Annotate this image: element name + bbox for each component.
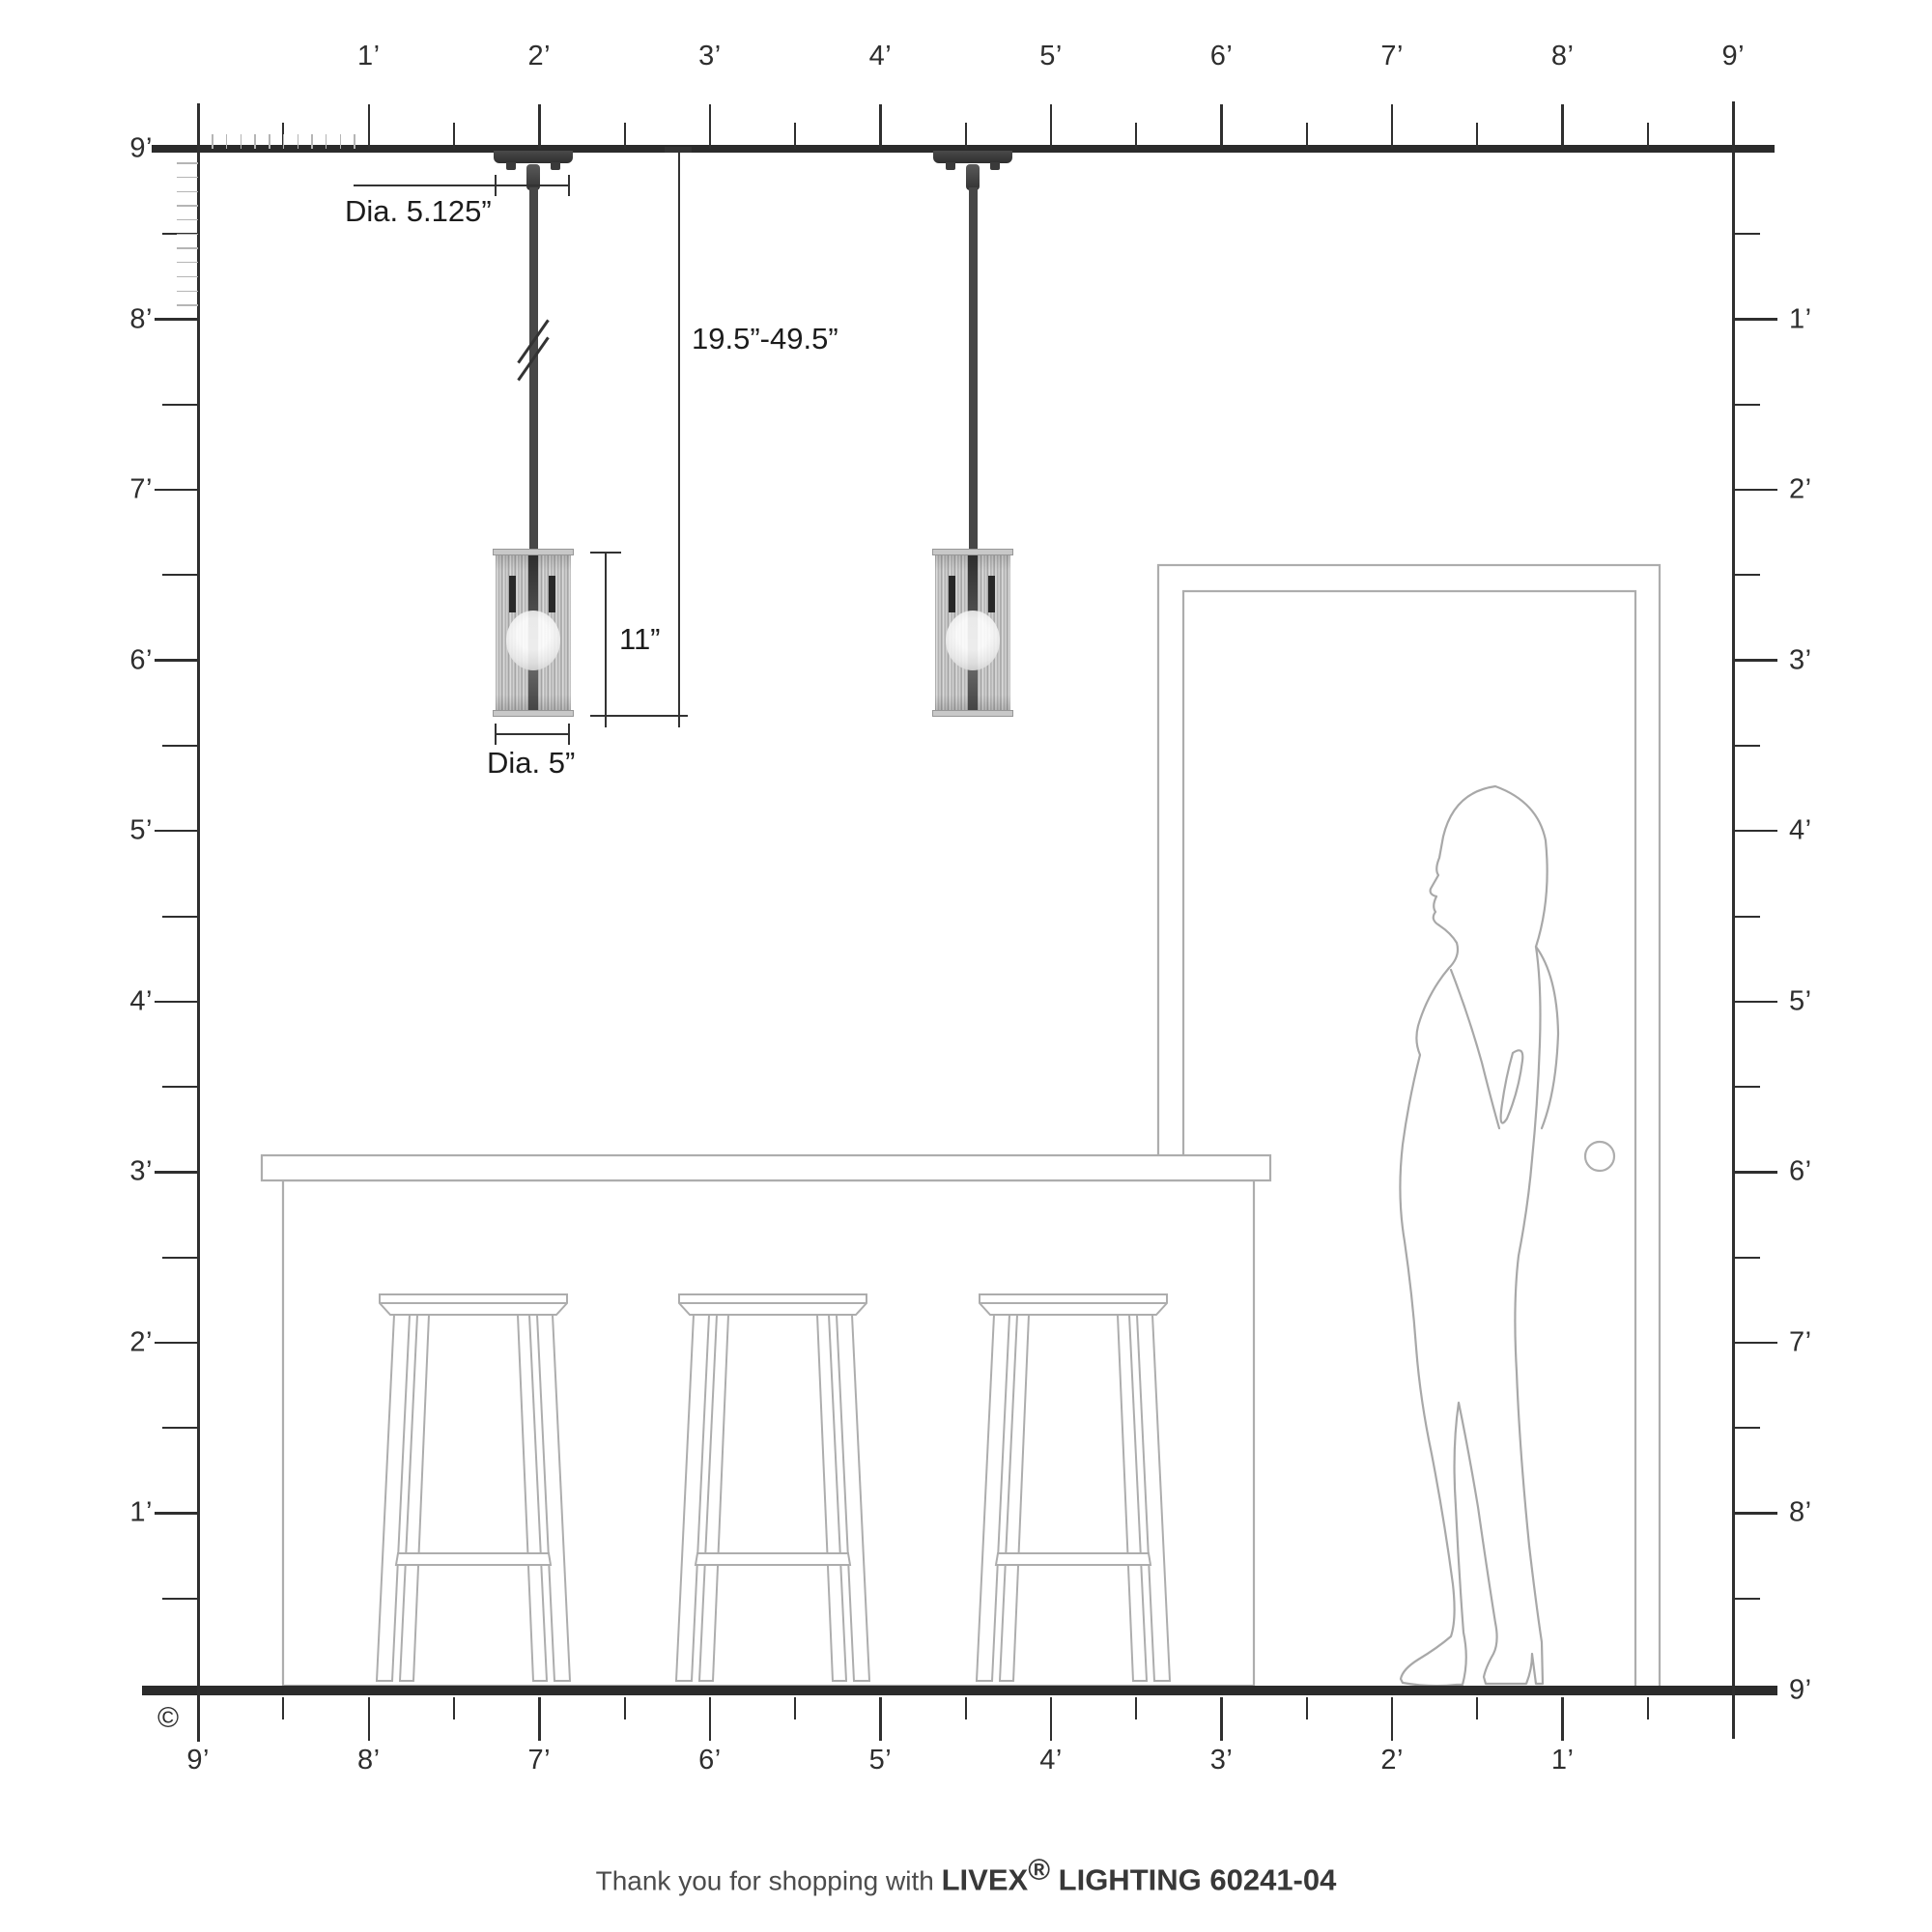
ruler-label: 7’ [1380, 41, 1404, 72]
scale-diagram-page: 1’2’3’4’5’6’7’8’9’9’8’7’6’5’4’3’2’1’1’2’… [0, 0, 1932, 1932]
floor-line [142, 1686, 1777, 1695]
ruler-tick [155, 489, 198, 492]
footer-thanks: Thank you for shopping with [596, 1865, 942, 1895]
ruler-label: 3’ [1789, 644, 1812, 676]
canopy-screw [990, 162, 1000, 170]
downrod-stem [969, 187, 978, 554]
footer-brand: LIVEX [942, 1862, 1029, 1896]
socket-clip [509, 576, 516, 612]
ruler-tick [794, 1697, 796, 1719]
ruler-tick [1733, 233, 1760, 235]
shade-top-rim [493, 549, 574, 555]
ruler-label: 9’ [186, 1745, 210, 1776]
ruler-label: 8’ [1789, 1497, 1812, 1529]
registered-mark: ® [1028, 1853, 1050, 1887]
ruler-label: 6’ [1210, 41, 1234, 72]
ribbed-glass-shade [493, 549, 574, 717]
inch-tick [326, 134, 327, 149]
ribbed-glass-shade [932, 549, 1013, 717]
inch-tick [354, 134, 355, 149]
ruler-label: 7’ [1789, 1326, 1812, 1358]
ruler-tick [162, 1086, 198, 1088]
inch-tick [177, 304, 198, 305]
ruler-tick [1733, 1001, 1777, 1004]
socket-clip [549, 576, 555, 612]
ruler-tick [368, 1697, 371, 1741]
shade-dia-tick [495, 724, 497, 745]
ruler-tick [162, 1598, 198, 1600]
ruler-tick [1733, 659, 1777, 662]
inch-tick [177, 162, 198, 163]
inch-tick [177, 205, 198, 206]
inch-tick [283, 134, 284, 149]
ruler-tick [1391, 104, 1394, 149]
ruler-label: 3’ [1210, 1745, 1234, 1776]
ruler-label: 7’ [528, 1745, 552, 1776]
ruler-label: 4’ [869, 41, 893, 72]
ruler-tick [1733, 916, 1760, 918]
counter-body [283, 1180, 1254, 1686]
overall-drop-dim-line [678, 153, 680, 727]
ruler-label: 9’ [129, 133, 153, 165]
ruler-tick [155, 1001, 198, 1004]
ruler-label: 2’ [129, 1326, 153, 1358]
ruler-tick [879, 104, 882, 149]
inch-tick [340, 134, 341, 149]
ruler-tick [538, 1697, 541, 1741]
ruler-label: 5’ [869, 1745, 893, 1776]
stem-knuckle [966, 164, 980, 190]
ruler-tick [965, 123, 967, 149]
ruler-label: 7’ [129, 474, 153, 506]
ruler-tick [709, 104, 712, 149]
ruler-tick [162, 916, 198, 918]
ruler-tick [1135, 1697, 1137, 1719]
ruler-tick [1733, 574, 1760, 576]
overall-drop-label: 19.5”-49.5” [692, 322, 838, 356]
ruler-label: 8’ [357, 1745, 381, 1776]
ruler-label: 5’ [1039, 41, 1063, 72]
ruler-label: 6’ [698, 1745, 722, 1776]
ruler-tick [624, 123, 626, 149]
ruler-label: 9’ [1721, 41, 1745, 72]
ruler-tick [162, 1257, 198, 1259]
shade-bottom-rim [932, 710, 1013, 717]
ruler-tick [162, 1427, 198, 1429]
ruler-tick [1306, 1697, 1308, 1719]
ruler-label: 3’ [698, 41, 722, 72]
canopy-screw [946, 162, 955, 170]
ruler-tick [155, 1171, 198, 1174]
ruler-label: 2’ [1380, 1745, 1404, 1776]
downrod-stem [529, 187, 538, 554]
canopy-diameter-label: Dia. 5.125” [345, 194, 492, 229]
inch-tick [177, 247, 198, 248]
ruler-label: 1’ [1789, 303, 1812, 335]
ruler-tick [1306, 123, 1308, 149]
ruler-tick [197, 1697, 200, 1741]
inch-tick [298, 134, 298, 149]
ruler-tick [1135, 123, 1137, 149]
ruler-label: 1’ [1551, 1745, 1575, 1776]
ruler-label: 2’ [528, 41, 552, 72]
shade-height-dim-line [605, 553, 607, 727]
ruler-tick [1733, 1257, 1760, 1259]
ruler-tick [1647, 1697, 1649, 1719]
canopy-screw [506, 162, 516, 170]
ruler-tick [1733, 1171, 1777, 1174]
ruler-tick [155, 659, 198, 662]
ruler-label: 6’ [129, 644, 153, 676]
ruler-tick [1733, 745, 1760, 747]
ruler-label: 5’ [1789, 985, 1812, 1017]
inch-tick [212, 134, 213, 149]
ruler-label: 8’ [129, 303, 153, 335]
ruler-tick [709, 1697, 712, 1741]
inch-tick [269, 134, 270, 149]
shade-height-top-tick [590, 552, 621, 554]
ruler-label: 5’ [129, 815, 153, 847]
ruler-tick [1220, 104, 1223, 149]
inch-tick [311, 134, 312, 149]
right-ruler-line [1732, 101, 1735, 1739]
inch-tick [177, 219, 198, 220]
ruler-tick [453, 1697, 455, 1719]
ruler-tick [1050, 104, 1053, 149]
left-ruler-line [197, 103, 200, 1742]
light-bulb [506, 611, 560, 670]
inch-tick [177, 177, 198, 178]
ruler-label: 4’ [1789, 815, 1812, 847]
woman-silhouette [1400, 786, 1558, 1686]
ruler-tick [1561, 104, 1564, 149]
ruler-tick [1733, 830, 1777, 833]
footer-product: LIGHTING 60241-04 [1050, 1862, 1336, 1896]
ruler-label: 4’ [1039, 1745, 1063, 1776]
overall-drop-top-tick [665, 147, 692, 153]
door-knob [1585, 1142, 1614, 1171]
ruler-tick [538, 104, 541, 149]
ruler-tick [1476, 1697, 1478, 1719]
shade-diameter-label: Dia. 5” [487, 746, 575, 781]
ruler-tick [1476, 123, 1478, 149]
ruler-tick [1561, 1697, 1564, 1741]
scene-drawing [0, 0, 1932, 1932]
canopy-dia-dim-line [354, 185, 570, 186]
ruler-label: 1’ [357, 41, 381, 72]
ruler-tick [368, 104, 371, 149]
inch-tick [177, 234, 198, 235]
canopy-dia-tick [568, 175, 570, 196]
inch-tick [177, 191, 198, 192]
ruler-tick [879, 1697, 882, 1741]
counter-top [262, 1155, 1270, 1180]
inch-tick [177, 262, 198, 263]
ruler-label: 8’ [1551, 41, 1575, 72]
ruler-tick [453, 123, 455, 149]
shared-bottom-tick [590, 715, 688, 717]
ruler-tick [1647, 123, 1649, 149]
inch-tick [177, 276, 198, 277]
ruler-tick [155, 1342, 198, 1345]
ruler-tick [1733, 318, 1777, 321]
shade-height-label: 11” [619, 622, 661, 657]
shade-dia-tick [568, 724, 570, 745]
ruler-tick [965, 1697, 967, 1719]
footer-text: Thank you for shopping with LIVEX® LIGHT… [0, 1853, 1932, 1897]
inch-tick [226, 134, 227, 149]
ruler-label: 2’ [1789, 474, 1812, 506]
ruler-tick [1733, 1342, 1777, 1345]
ruler-tick [1733, 1427, 1760, 1429]
ruler-tick [282, 1697, 284, 1719]
ruler-tick [162, 404, 198, 406]
ruler-tick [155, 1512, 198, 1515]
inch-tick [254, 134, 255, 149]
ruler-tick [1733, 404, 1760, 406]
canopy-dia-tick [495, 175, 497, 196]
ruler-tick [1220, 1697, 1223, 1741]
ruler-tick [1050, 1697, 1053, 1741]
ruler-tick [1391, 1697, 1394, 1741]
ruler-tick [794, 123, 796, 149]
ruler-label: 6’ [1789, 1156, 1812, 1188]
inch-tick [177, 291, 198, 292]
ruler-label: 4’ [129, 985, 153, 1017]
ruler-tick [162, 745, 198, 747]
ruler-tick [624, 1697, 626, 1719]
canopy-screw [551, 162, 560, 170]
ruler-label: 1’ [129, 1497, 153, 1529]
ruler-label: 9’ [1789, 1675, 1812, 1707]
ruler-tick [155, 830, 198, 833]
socket-clip [949, 576, 955, 612]
ruler-tick [155, 318, 198, 321]
shade-bottom-rim [493, 710, 574, 717]
shade-top-rim [932, 549, 1013, 555]
socket-clip [988, 576, 995, 612]
ruler-tick [1733, 1512, 1777, 1515]
ruler-tick [1733, 1086, 1760, 1088]
ruler-tick [1733, 1598, 1760, 1600]
ruler-label: 3’ [129, 1156, 153, 1188]
ruler-tick [1733, 489, 1777, 492]
inch-tick [241, 134, 241, 149]
shade-dia-dim-line [496, 733, 570, 735]
copyright-symbol: © [157, 1702, 179, 1735]
light-bulb [946, 611, 1000, 670]
ruler-tick [162, 574, 198, 576]
